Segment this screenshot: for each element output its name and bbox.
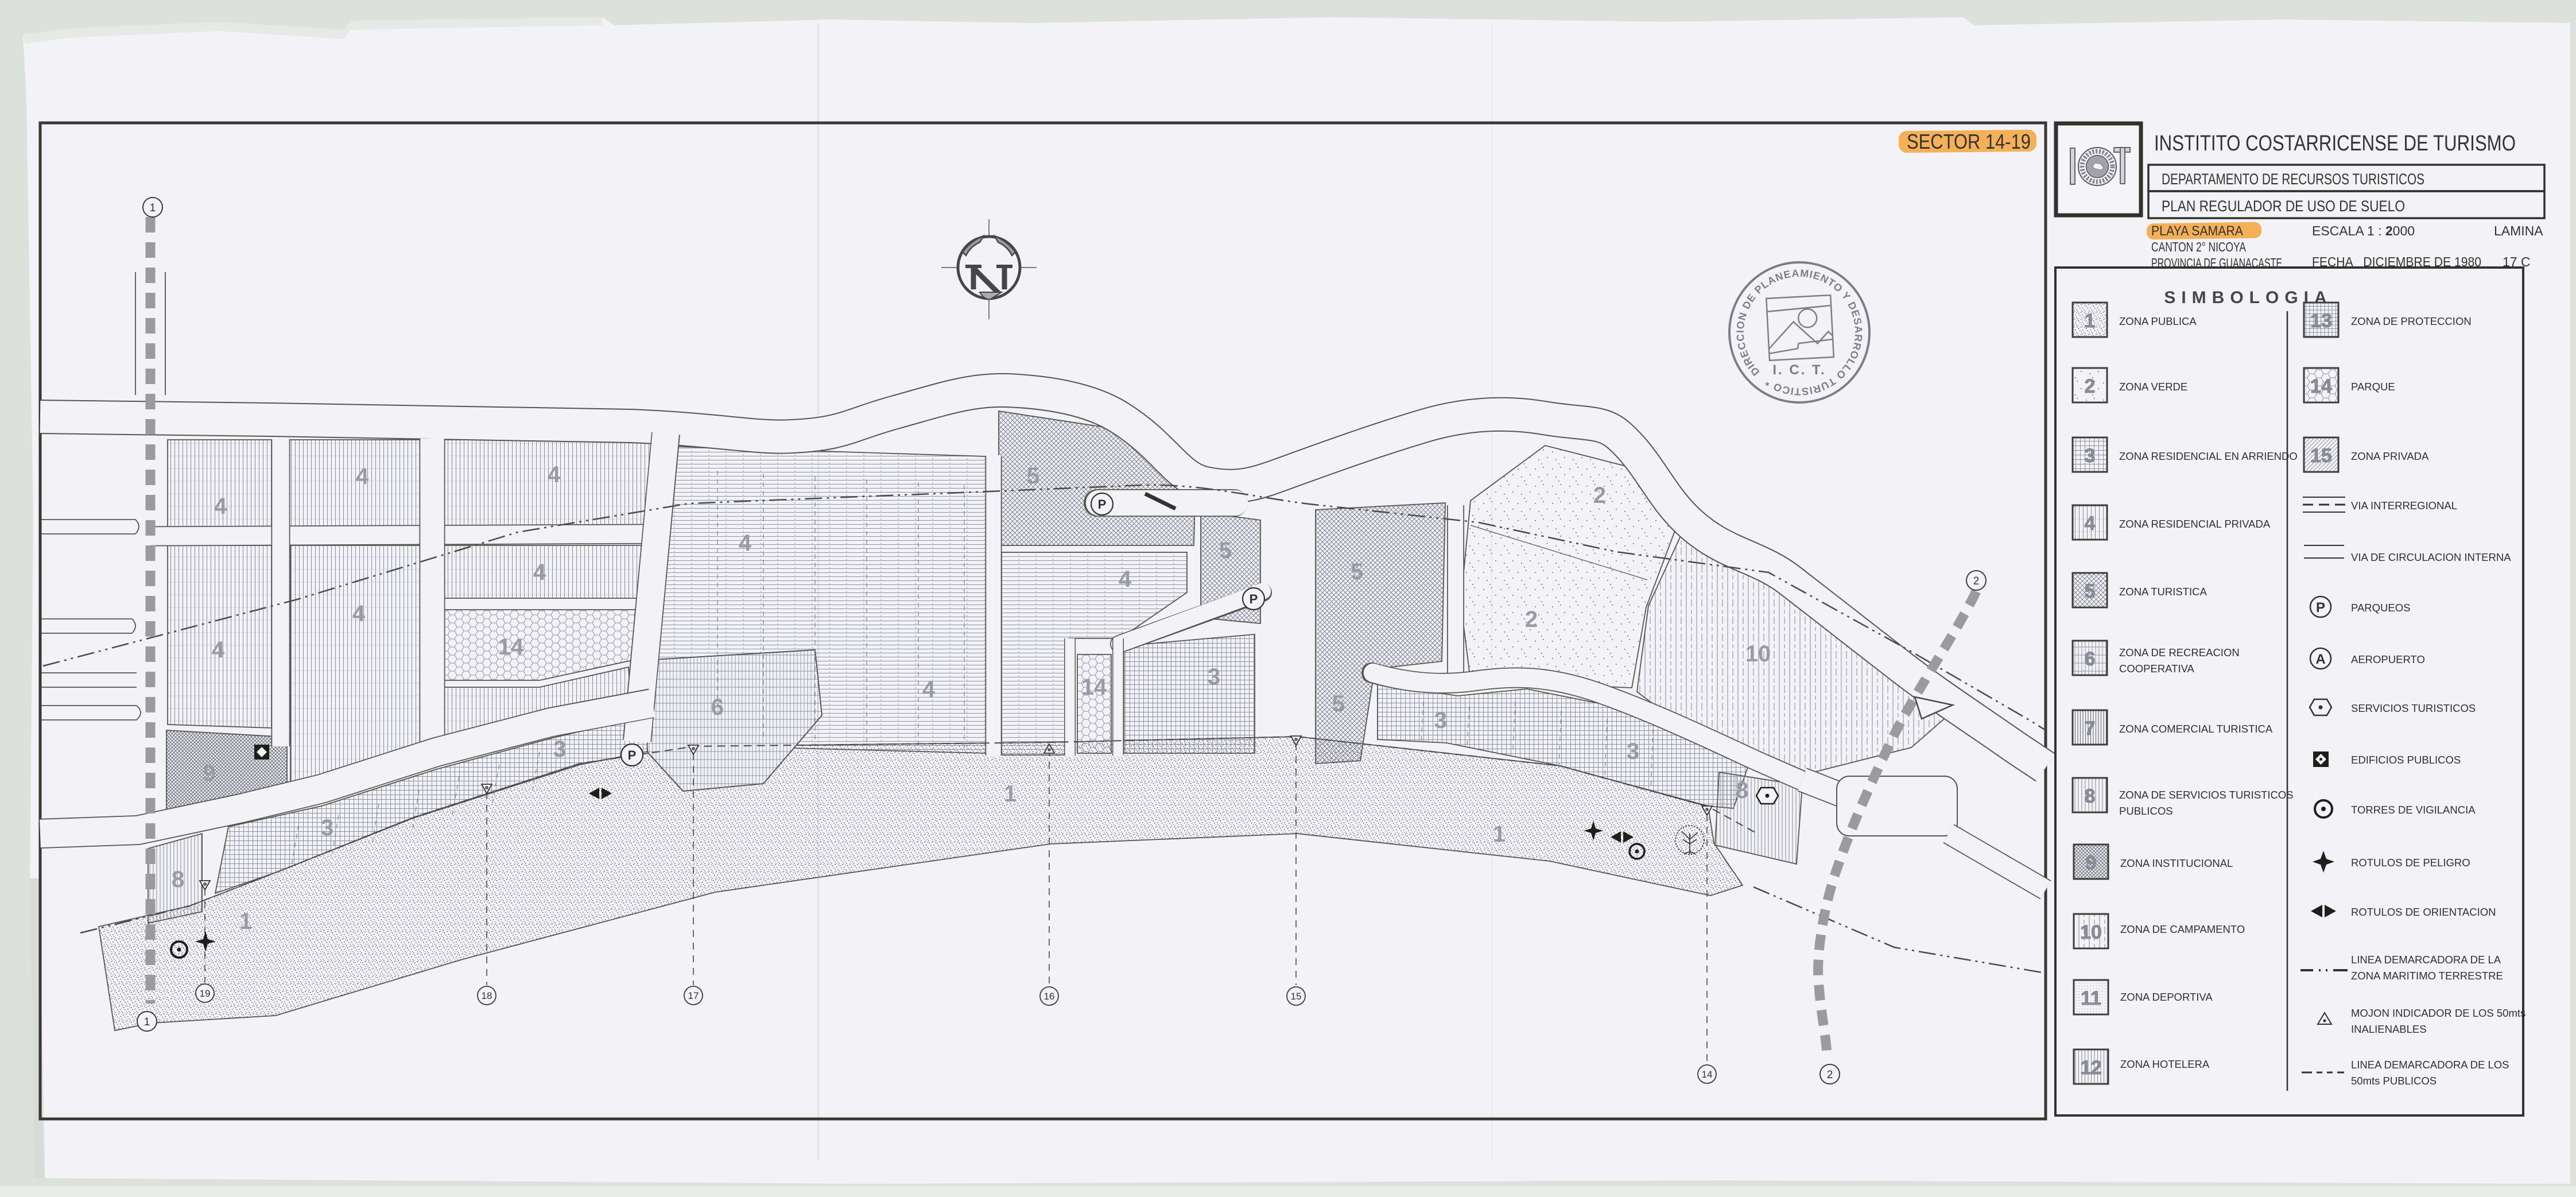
svg-text:4: 4 — [533, 560, 546, 585]
svg-text:5: 5 — [1332, 691, 1345, 716]
svg-text:CANTON 2° NICOYA: CANTON 2° NICOYA — [2151, 239, 2246, 254]
svg-text:ZONA RESIDENCIAL PRIVADA: ZONA RESIDENCIAL PRIVADA — [2119, 518, 2271, 530]
svg-text:A: A — [2315, 652, 2325, 667]
svg-text:ROTULOS DE PELIGRO: ROTULOS DE PELIGRO — [2351, 857, 2470, 869]
svg-text:16: 16 — [1044, 991, 1055, 1002]
svg-text:PUBLICOS: PUBLICOS — [2119, 805, 2173, 817]
svg-text:PARQUE: PARQUE — [2351, 381, 2395, 393]
svg-text:4: 4 — [352, 601, 366, 626]
svg-text:4: 4 — [739, 530, 752, 556]
svg-text:4: 4 — [356, 464, 369, 489]
svg-text:ZONA DE SERVICIOS TURISTICOS: ZONA DE SERVICIOS TURISTICOS — [2119, 789, 2294, 801]
svg-text:ZONA HOTELERA: ZONA HOTELERA — [2120, 1058, 2210, 1070]
svg-text:5: 5 — [1027, 463, 1039, 489]
svg-text:3: 3 — [1627, 739, 1639, 764]
svg-text:8: 8 — [172, 867, 184, 892]
svg-text:15: 15 — [1291, 991, 1302, 1002]
svg-text:SERVICIOS TURISTICOS: SERVICIOS TURISTICOS — [2351, 702, 2476, 714]
svg-text:1: 1 — [1493, 822, 1506, 847]
svg-text:6: 6 — [2085, 648, 2096, 670]
svg-text:13: 13 — [2310, 310, 2332, 332]
svg-text:2: 2 — [1593, 483, 1606, 508]
svg-text:P: P — [1098, 497, 1107, 512]
svg-text:3: 3 — [321, 815, 333, 840]
svg-text:5: 5 — [1219, 538, 1232, 563]
svg-text:COOPERATIVA: COOPERATIVA — [2119, 663, 2195, 675]
svg-text:8: 8 — [1736, 778, 1748, 803]
svg-text:ZONA TURISTICA: ZONA TURISTICA — [2119, 586, 2207, 598]
svg-text:2: 2 — [2085, 375, 2096, 397]
svg-text:17: 17 — [688, 990, 699, 1001]
svg-text:4: 4 — [2085, 513, 2096, 534]
svg-text:1: 1 — [144, 1016, 150, 1028]
svg-text:12: 12 — [2080, 1057, 2102, 1079]
svg-text:2: 2 — [1525, 607, 1538, 632]
svg-text:3: 3 — [553, 737, 566, 762]
svg-text:ESCALA 1 : 2000: ESCALA 1 : 2000 — [2312, 223, 2415, 238]
svg-text:INALIENABLES: INALIENABLES — [2351, 1023, 2427, 1035]
svg-text:VIA INTERREGIONAL: VIA INTERREGIONAL — [2351, 499, 2457, 512]
svg-text:PARQUEOS: PARQUEOS — [2351, 602, 2410, 614]
svg-text:4: 4 — [548, 462, 561, 487]
svg-text:ZONA MARITIMO TERRESTRE: ZONA MARITIMO TERRESTRE — [2351, 970, 2503, 982]
svg-text:10: 10 — [1745, 641, 1771, 667]
svg-text:AEROPUERTO: AEROPUERTO — [2351, 653, 2425, 665]
svg-text:1: 1 — [2085, 310, 2096, 332]
svg-text:I. C. T.: I. C. T. — [1772, 362, 1826, 378]
svg-text:19: 19 — [200, 988, 211, 999]
svg-text:ZONA PRIVADA: ZONA PRIVADA — [2351, 450, 2429, 462]
svg-text:ZONA PUBLICA: ZONA PUBLICA — [2119, 315, 2197, 327]
svg-text:10: 10 — [2080, 921, 2102, 943]
svg-text:VIA DE CIRCULACION INTERNA: VIA DE CIRCULACION INTERNA — [2351, 551, 2511, 563]
svg-text:50mts PUBLICOS: 50mts PUBLICOS — [2351, 1075, 2437, 1087]
svg-text:4: 4 — [214, 494, 227, 519]
svg-text:7: 7 — [2085, 718, 2096, 739]
svg-text:ZONA DEPORTIVA: ZONA DEPORTIVA — [2120, 991, 2213, 1003]
svg-text:P: P — [2316, 600, 2325, 615]
svg-text:14: 14 — [498, 634, 524, 660]
svg-text:5: 5 — [1351, 559, 1363, 584]
svg-text:15: 15 — [2310, 445, 2332, 467]
svg-text:ZONA INSTITUCIONAL: ZONA INSTITUCIONAL — [2120, 857, 2233, 869]
svg-text:LINEA DEMARCADORA DE LOS: LINEA DEMARCADORA DE LOS — [2351, 1059, 2509, 1071]
svg-text:4: 4 — [1119, 567, 1132, 592]
svg-text:ZONA RESIDENCIAL EN ARRIENDO: ZONA RESIDENCIAL EN ARRIENDO — [2119, 450, 2298, 462]
svg-text:EDIFICIOS PUBLICOS: EDIFICIOS PUBLICOS — [2351, 754, 2461, 766]
svg-text:18: 18 — [482, 990, 492, 1001]
svg-text:PLAN REGULADOR DE USO DE SUELO: PLAN REGULADOR DE USO DE SUELO — [2162, 197, 2405, 215]
svg-text:P: P — [628, 748, 637, 762]
svg-text:11: 11 — [2081, 987, 2101, 1009]
svg-text:3: 3 — [2085, 445, 2096, 467]
svg-text:TORRES DE VIGILANCIA: TORRES DE VIGILANCIA — [2351, 804, 2476, 816]
svg-text:4: 4 — [212, 637, 225, 663]
svg-text:SECTOR 14-19: SECTOR 14-19 — [1907, 130, 2031, 153]
svg-text:14: 14 — [1702, 1069, 1713, 1080]
svg-text:5: 5 — [2085, 580, 2096, 602]
svg-text:ZONA COMERCIAL TURISTICA: ZONA COMERCIAL TURISTICA — [2119, 723, 2273, 735]
svg-text:DEPARTAMENTO DE RECURSOS TURIS: DEPARTAMENTO DE RECURSOS TURISTICOS — [2162, 171, 2424, 188]
svg-text:2: 2 — [1827, 1069, 1833, 1081]
svg-text:ZONA DE PROTECCION: ZONA DE PROTECCION — [2351, 315, 2472, 327]
svg-text:14: 14 — [1081, 675, 1107, 700]
svg-text:14: 14 — [2310, 375, 2332, 397]
svg-text:LAMINA: LAMINA — [2494, 223, 2543, 238]
svg-text:ZONA DE CAMPAMENTO: ZONA DE CAMPAMENTO — [2120, 923, 2245, 935]
svg-text:INSTITITO COSTARRICENSE DE TUR: INSTITITO COSTARRICENSE DE TURISMO — [2154, 131, 2516, 156]
svg-text:P: P — [1250, 592, 1258, 606]
svg-text:9: 9 — [2086, 852, 2097, 874]
svg-text:PLAYA SAMARA: PLAYA SAMARA — [2151, 223, 2243, 239]
svg-text:LINEA DEMARCADORA DE LA: LINEA DEMARCADORA DE LA — [2351, 954, 2501, 966]
svg-text:ZONA VERDE: ZONA VERDE — [2119, 381, 2187, 393]
svg-text:4: 4 — [922, 677, 936, 702]
svg-text:ZONA DE RECREACION: ZONA DE RECREACION — [2119, 646, 2240, 658]
svg-text:9: 9 — [203, 761, 216, 786]
svg-text:MOJON INDICADOR DE LOS 50mts: MOJON INDICADOR DE LOS 50mts — [2351, 1007, 2525, 1019]
svg-text:1: 1 — [239, 909, 252, 934]
svg-text:1: 1 — [1004, 781, 1017, 807]
svg-text:1: 1 — [150, 202, 156, 214]
svg-text:8: 8 — [2085, 785, 2096, 807]
svg-text:ROTULOS DE ORIENTACION: ROTULOS DE ORIENTACION — [2351, 906, 2496, 918]
svg-text:3: 3 — [1208, 664, 1220, 689]
svg-text:2: 2 — [1973, 575, 1980, 587]
svg-text:3: 3 — [1434, 708, 1447, 733]
